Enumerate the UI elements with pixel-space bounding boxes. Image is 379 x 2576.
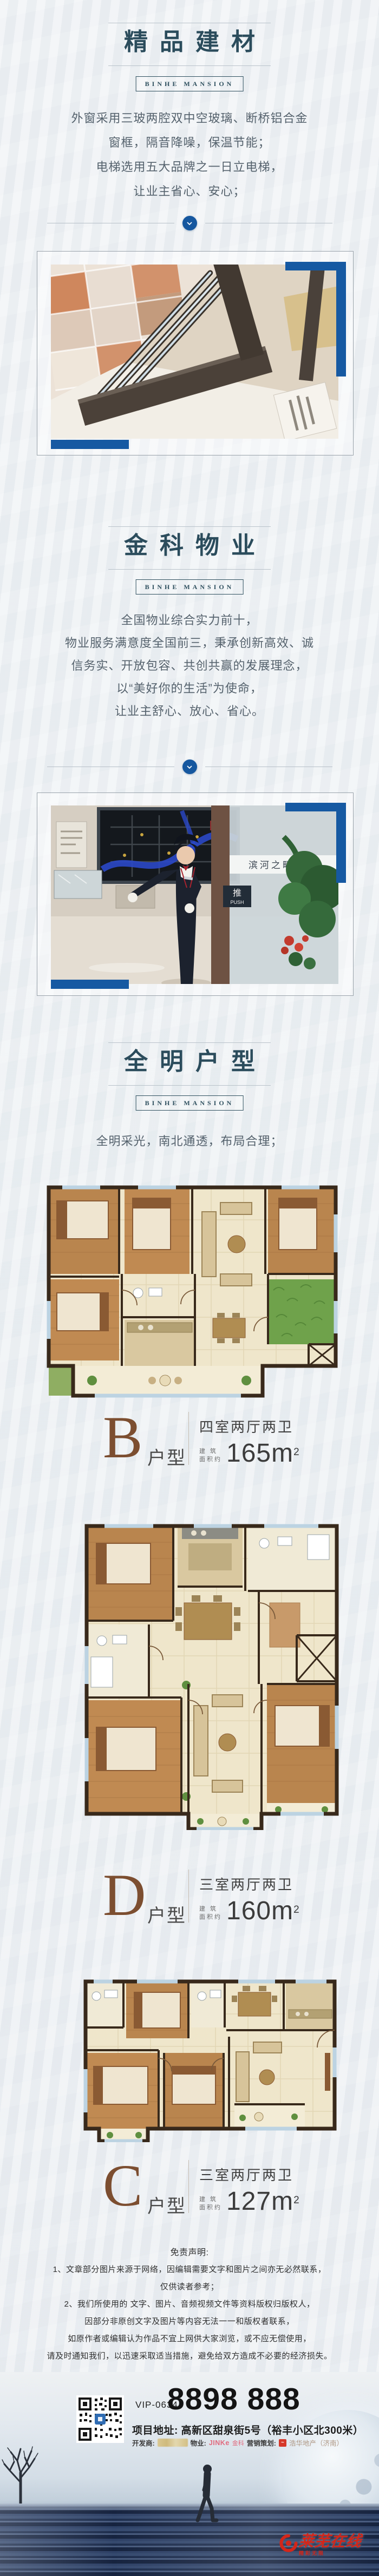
- divider-line: [108, 23, 271, 23]
- text-line: 让业主舒心、放心、省心。: [0, 700, 379, 723]
- green-court: [268, 1279, 336, 1344]
- brand-badge: BINHE MANSION: [136, 76, 244, 91]
- plan-d-label: D 户型 三室两厅两卫 建 筑 面积约 160m 2: [0, 1865, 379, 1929]
- area-superscript: 2: [293, 1446, 299, 1458]
- text-line: 电梯选用五大品牌之一日立电梯，: [0, 155, 379, 179]
- disclaimer-title: 免责声明:: [0, 2245, 379, 2258]
- divider-line: [108, 569, 271, 570]
- floorplan-b-image: [41, 1182, 344, 1420]
- photo-card-window: [37, 251, 354, 455]
- floorplan-c-image: [80, 1977, 347, 2142]
- area-value: 160m: [226, 1898, 293, 1925]
- property-brand-suffix: 金科: [232, 2439, 244, 2447]
- developer-logo: [158, 2439, 188, 2447]
- property-brand: JINKe: [209, 2439, 230, 2447]
- site-watermark: 莱芜在线 精彩无限: [279, 2533, 362, 2557]
- tv-cabinet: [325, 2053, 330, 2091]
- area-prefix: 面积约: [199, 1913, 222, 1921]
- plan-c-label: C 户型 三室两厅两卫 建 筑 面积约 127m 2: [0, 2156, 379, 2220]
- push-sign: 推 PUSH: [223, 886, 251, 907]
- divider-line: [108, 1042, 271, 1043]
- text-line: 窗框，隔音降噪，保温节能；: [0, 130, 379, 155]
- watermark-subtext: 精彩无限: [299, 2549, 362, 2557]
- footer: VIP-0634 8898 888 项目地址: 高新区甜泉街5号（裕丰小区北30…: [0, 2372, 379, 2576]
- chevron-down-icon: [182, 216, 197, 230]
- divider-line: [188, 1870, 189, 1923]
- section-divider: [0, 759, 379, 774]
- blue-accent-bar: [51, 980, 129, 989]
- blue-accent-bar: [336, 803, 346, 883]
- area-prefix: 建 筑: [199, 1905, 222, 1913]
- marketing-logo-icon: ~: [279, 2439, 286, 2447]
- partners-row: 开发商: 物业: JINKe 金科 营销策划: ~ 浩华地产（济南）: [132, 2438, 343, 2448]
- kitchen-counter: [182, 1527, 238, 1539]
- watermark-swirl-icon: [279, 2533, 298, 2555]
- divider-line: [47, 767, 174, 767]
- brand-badge-text: BINHE MANSION: [145, 80, 234, 88]
- shower: [308, 1535, 329, 1560]
- coffee-table: [219, 1734, 236, 1751]
- plan-rooms: 三室两厅两卫: [199, 1874, 293, 1894]
- text-line: 信务实、开放包容、共创共赢的发展理念，: [0, 655, 379, 677]
- disclaimer-line: 如原作者或编辑认为作品不宜上网供大家浏览，或不应无偿使用，: [0, 2333, 379, 2344]
- text-line: 让业主省心、安心；: [0, 179, 379, 203]
- divider-line: [108, 526, 271, 527]
- office-photo: 本案 新区 滨河之畔 学府 推 PUSH: [51, 805, 338, 984]
- brand-badge-text: BINHE MANSION: [145, 583, 234, 591]
- property-label: 物业:: [191, 2438, 206, 2448]
- floorplan-text: 全明采光，南北通透，布局合理；: [0, 1130, 379, 1153]
- divider-line: [108, 65, 271, 66]
- area-prefix: 面积约: [199, 2204, 222, 2212]
- qr-code: [76, 2395, 124, 2443]
- promo-page: 精品建材 BINHE MANSION 外窗采用三玻两腔双中空玻璃、断桥铝合金 窗…: [0, 0, 379, 2576]
- kitchen-counter: [127, 1323, 192, 1332]
- disclaimer-line: 仅供读者参考；: [0, 2281, 379, 2292]
- section-divider: [0, 216, 379, 230]
- disclaimer-line: 请及时通知我们，以迅速采取适当措施，避免给双方造成不必要的经济损失。: [0, 2350, 379, 2361]
- text-line: 物业服务满意度全国前三，秉承创新高效、诚: [0, 632, 379, 655]
- phone-number: 8898 888: [167, 2383, 300, 2415]
- disclaimer-line: 2、我们所使用的 文字、图片、音频视频文件等资料版权归版权人，: [0, 2298, 379, 2309]
- photo-card-office: 本案 新区 滨河之畔 学府 推 PUSH: [37, 792, 354, 996]
- bath-floor: [191, 1981, 225, 2027]
- walking-person: [192, 2463, 225, 2528]
- area-value: 165m: [226, 1440, 293, 1467]
- coffee-table: [259, 2070, 275, 2085]
- brand-badge-text: BINHE MANSION: [145, 1099, 234, 1107]
- property-text: 全国物业综合实力前十， 物业服务满意度全国前三，秉承创新高效、诚 信务实、开放包…: [0, 609, 379, 723]
- brand-badge: BINHE MANSION: [136, 1095, 244, 1111]
- divider-line: [47, 223, 174, 223]
- marketing-brand: 浩华地产（济南）: [289, 2438, 343, 2448]
- plan-letter-suffix: 户型: [147, 2191, 186, 2218]
- developer-label: 开发商:: [132, 2438, 155, 2448]
- divider-line: [205, 223, 332, 223]
- area-superscript: 2: [293, 1904, 299, 1916]
- sink: [149, 1288, 162, 1296]
- plan-letter-suffix: 户型: [147, 1901, 186, 1927]
- divider-line: [205, 767, 332, 767]
- kitchen-counter: [289, 2010, 332, 2018]
- dining-table: [238, 1992, 271, 2016]
- dining-table: [184, 1603, 232, 1640]
- divider-line: [188, 1412, 189, 1465]
- section-title-property: 金科物业: [0, 530, 379, 562]
- display-case: [54, 870, 102, 899]
- text-line: 外窗采用三玻两腔双中空玻璃、断桥铝合金: [0, 106, 379, 130]
- plan-letter: B: [103, 1408, 142, 1467]
- area-superscript: 2: [293, 2195, 299, 2207]
- bath-floor: [86, 1981, 123, 2027]
- plan-letter: D: [103, 1865, 146, 1925]
- text-line: 全国物业综合实力前十，: [0, 609, 379, 632]
- divider-line: [188, 2160, 189, 2213]
- plan-b-label: B 户型 四室两厅两卫 建 筑 面积约 165m 2: [0, 1408, 379, 1471]
- push-sign-en: PUSH: [230, 900, 244, 905]
- text-line: 全明采光，南北通透，布局合理；: [0, 1130, 379, 1153]
- area-prefix: 面积约: [199, 1456, 222, 1464]
- disclaimer-line: 1、文章部分图片来源于网络，因编辑需要文字和图片之间亦无必然联系，: [0, 2263, 379, 2275]
- push-sign-cn: 推: [233, 888, 241, 898]
- kitchen-floor: [286, 1981, 335, 2030]
- window-sample-photo: [51, 265, 338, 439]
- tree-silhouette: [0, 2443, 42, 2506]
- watermark-text: 莱芜在线: [298, 2533, 362, 2549]
- project-address: 项目地址: 高新区甜泉街5号（裕丰小区北300米）: [132, 2422, 363, 2437]
- plan-area: 建 筑 面积约 127m 2: [199, 2188, 299, 2215]
- section-title-materials: 精品建材: [0, 26, 379, 58]
- divider-line: [108, 1085, 271, 1086]
- marketing-label: 营销策划:: [247, 2438, 276, 2448]
- plan-letter: C: [103, 2156, 142, 2215]
- plan-rooms: 三室两厅两卫: [199, 2164, 293, 2184]
- plan-rooms: 四室两厅两卫: [199, 1416, 293, 1436]
- disclaimer-line: 因部分非原创文字及图片等内容无法一一和版权者联系，: [0, 2315, 379, 2327]
- face: [177, 846, 195, 864]
- white-glove: [185, 903, 194, 913]
- blue-accent-bar: [336, 262, 346, 377]
- area-prefix: 建 筑: [199, 2196, 222, 2204]
- plan-area: 建 筑 面积约 165m 2: [199, 1440, 299, 1467]
- dining-table: [213, 1318, 245, 1338]
- section-title-floorplan: 全明户型: [0, 1046, 379, 1078]
- materials-text: 外窗采用三玻两腔双中空玻璃、断桥铝合金 窗框，隔音降噪，保温节能； 电梯选用五大…: [0, 106, 379, 203]
- brand-badge: BINHE MANSION: [136, 579, 244, 595]
- blue-accent-bar: [51, 440, 129, 449]
- white-glove: [128, 893, 138, 902]
- chevron-down-icon: [182, 759, 197, 774]
- plan-letter-suffix: 户型: [147, 1443, 186, 1470]
- text-line: 以“美好你的生活”为使命，: [0, 677, 379, 700]
- area-prefix: 建 筑: [199, 1448, 222, 1456]
- plan-area: 建 筑 面积约 160m 2: [199, 1898, 299, 1925]
- coffee-table: [228, 1236, 245, 1253]
- entry-rug: [270, 1603, 300, 1647]
- toilet: [133, 1288, 143, 1298]
- floorplan-d-image: [80, 1522, 343, 1830]
- area-value: 127m: [226, 2188, 293, 2215]
